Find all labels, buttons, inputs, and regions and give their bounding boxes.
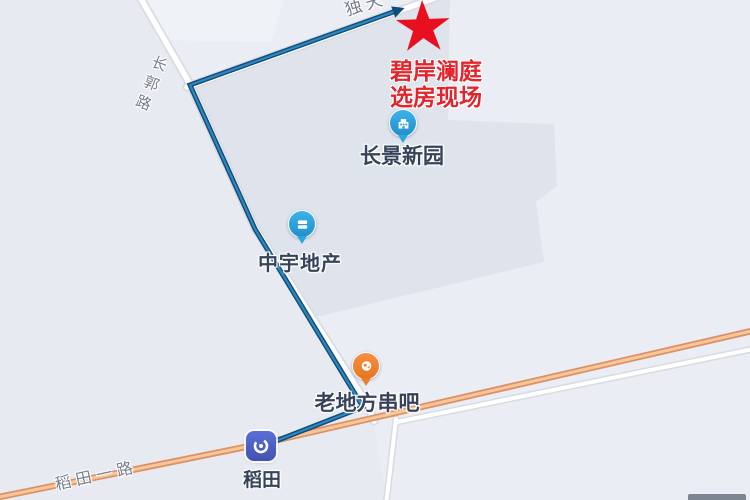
company-pin-icon bbox=[288, 210, 316, 238]
poi-pin-changjingxinyuan[interactable] bbox=[389, 109, 417, 143]
destination-caption: 碧岸澜庭 选房现场 bbox=[377, 58, 495, 110]
poi-label-zhongyudichan: 中宇地产 bbox=[256, 247, 344, 276]
pin-tail bbox=[297, 236, 307, 244]
pin-tail bbox=[361, 378, 371, 386]
poi-label-laodifangchuanba: 老地方串吧 bbox=[309, 387, 425, 417]
pin-tail bbox=[398, 135, 408, 143]
map-canvas[interactable]: 独天 长郭路 稻田一路 bbox=[0, 0, 750, 500]
metro-station-icon[interactable] bbox=[246, 431, 276, 461]
road-southeast-parallel bbox=[397, 349, 750, 422]
poi-pin-laodifangchuanba[interactable] bbox=[352, 352, 380, 386]
poi-pin-zhongyudichan[interactable] bbox=[288, 210, 316, 244]
destination-caption-line1: 碧岸澜庭 bbox=[377, 58, 495, 84]
destination-caption-line2: 选房现场 bbox=[377, 84, 495, 110]
poi-label-daotian: 稻田 bbox=[241, 465, 283, 492]
restaurant-pin-icon bbox=[352, 352, 380, 380]
poi-label-changjingxinyuan: 长景新园 bbox=[355, 140, 449, 170]
clipped-edge-label bbox=[688, 494, 746, 500]
map-base-layer bbox=[0, 0, 750, 500]
residential-pin-icon bbox=[389, 109, 417, 137]
